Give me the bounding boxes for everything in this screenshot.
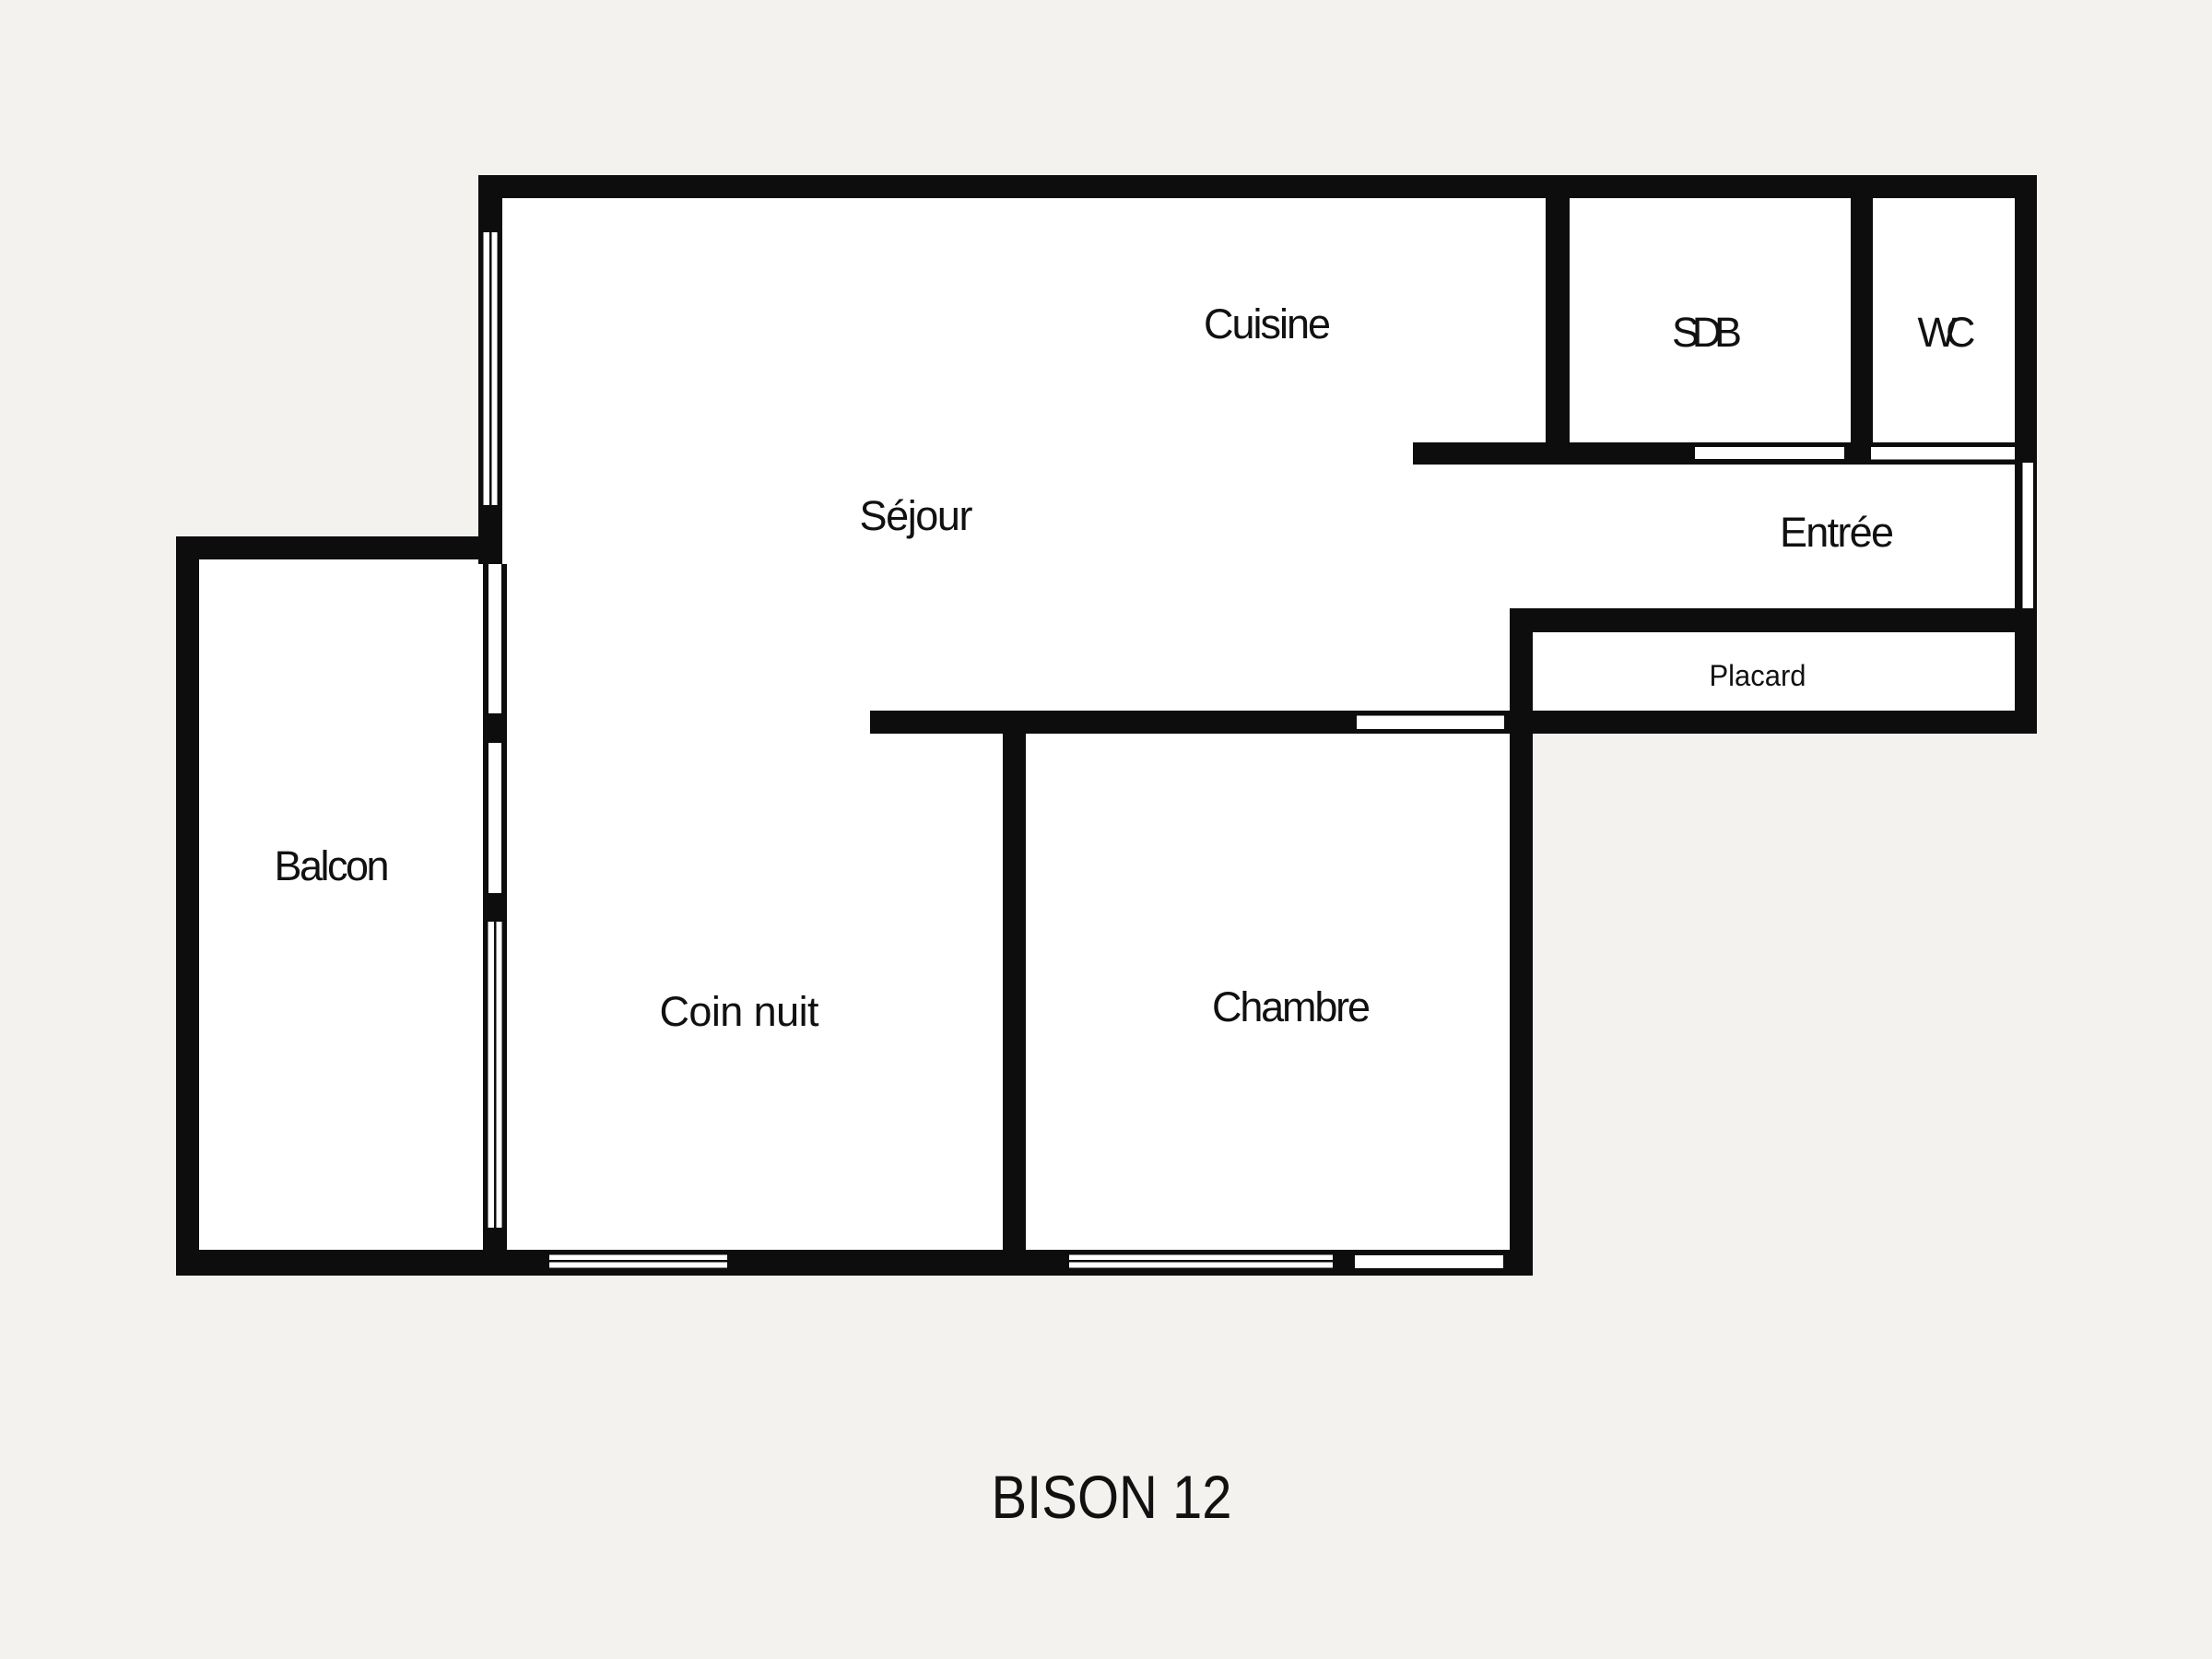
svg-text:Balcon: Balcon bbox=[275, 842, 390, 889]
svg-text:WC: WC bbox=[1918, 309, 1976, 356]
svg-text:Placard: Placard bbox=[1710, 659, 1806, 692]
svg-text:Chambre: Chambre bbox=[1212, 983, 1371, 1030]
svg-text:Entrée: Entrée bbox=[1780, 509, 1894, 556]
svg-text:Séjour: Séjour bbox=[860, 492, 973, 539]
svg-text:Cuisine: Cuisine bbox=[1204, 300, 1331, 347]
svg-text:Coin nuit: Coin nuit bbox=[660, 988, 819, 1035]
svg-text:SDB: SDB bbox=[1672, 309, 1742, 356]
svg-text:BISON 12: BISON 12 bbox=[992, 1463, 1232, 1531]
